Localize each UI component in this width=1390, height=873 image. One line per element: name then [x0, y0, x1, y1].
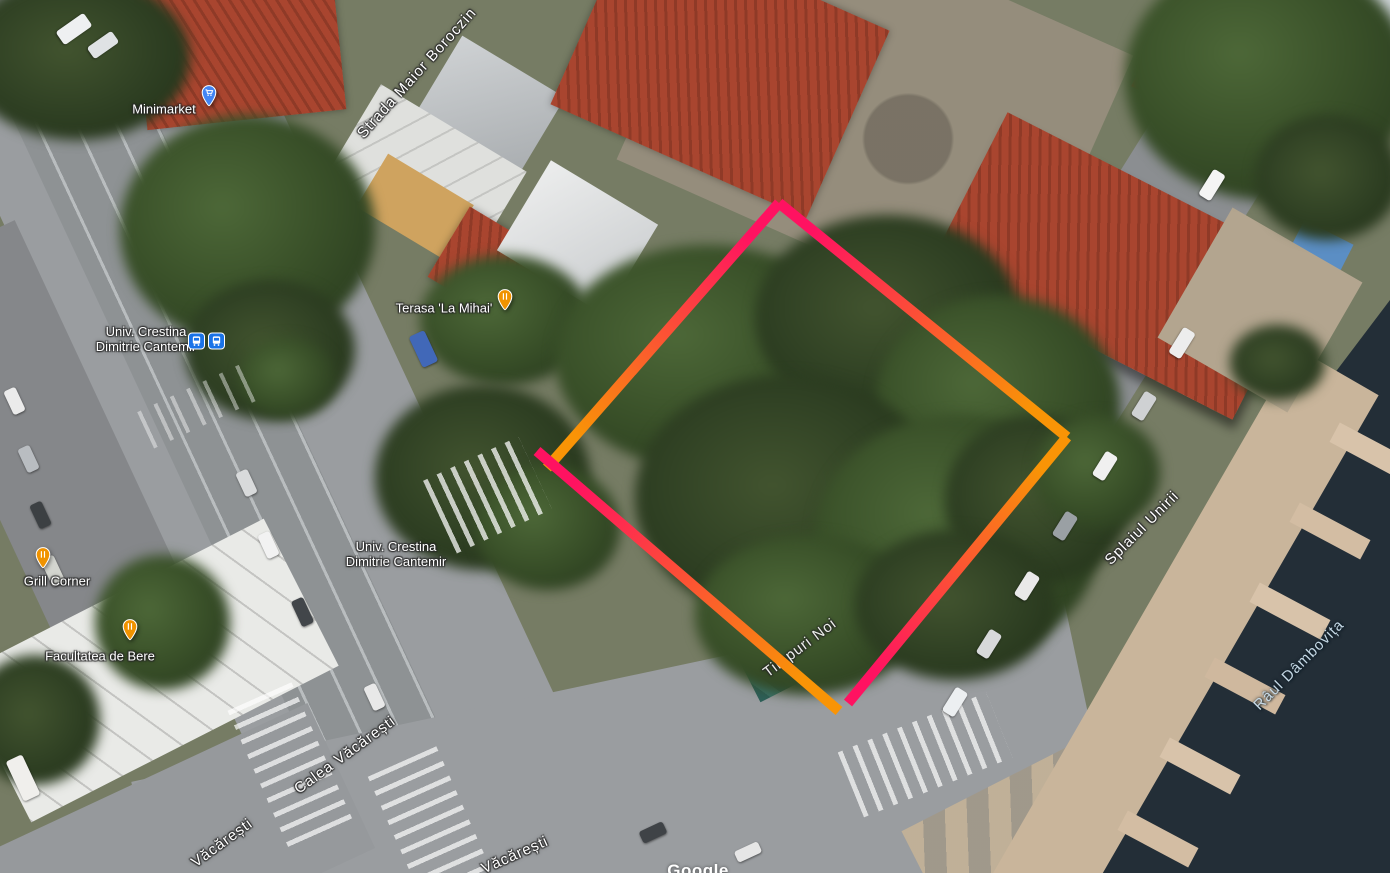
- poi-label-minimarket[interactable]: Minimarket: [132, 102, 196, 117]
- restaurant-pin[interactable]: [122, 619, 138, 646]
- trees: [1255, 115, 1390, 240]
- transit-label-line2: Dimitrie Cantemir: [96, 339, 196, 354]
- poi-label-grill-corner[interactable]: Grill Corner: [24, 574, 90, 589]
- trees: [95, 555, 230, 690]
- restaurant-pin[interactable]: [35, 547, 51, 574]
- trees: [1230, 325, 1325, 400]
- poi-label-line2: Dimitrie Cantemir: [346, 554, 446, 569]
- tram-station-icon[interactable]: [208, 333, 225, 350]
- trees-central-canopy: [855, 530, 1055, 680]
- car: [1131, 390, 1158, 421]
- map-canvas[interactable]: Minimarket Strada Maior Boroczin Univ. C…: [0, 0, 1390, 873]
- shopping-cart-pin[interactable]: [201, 85, 217, 112]
- poi-label-terasa-la-mihai[interactable]: Terasa 'La Mihai': [396, 301, 493, 316]
- poi-label-facultatea-de-bere[interactable]: Facultatea de Bere: [45, 649, 155, 664]
- bus-station-icon[interactable]: [188, 333, 205, 350]
- transit-stop-icons[interactable]: [188, 333, 225, 350]
- trees: [240, 338, 335, 418]
- poi-label-line1: Univ. Crestina: [346, 539, 446, 554]
- transit-label-univ-crestina[interactable]: Univ. Crestina Dimitrie Cantemir: [96, 324, 196, 354]
- transit-label-line1: Univ. Crestina: [96, 324, 196, 339]
- google-watermark: Google: [667, 861, 729, 873]
- restaurant-pin[interactable]: [497, 289, 513, 316]
- poi-label-univ-crestina-2[interactable]: Univ. Crestina Dimitrie Cantemir: [346, 539, 446, 569]
